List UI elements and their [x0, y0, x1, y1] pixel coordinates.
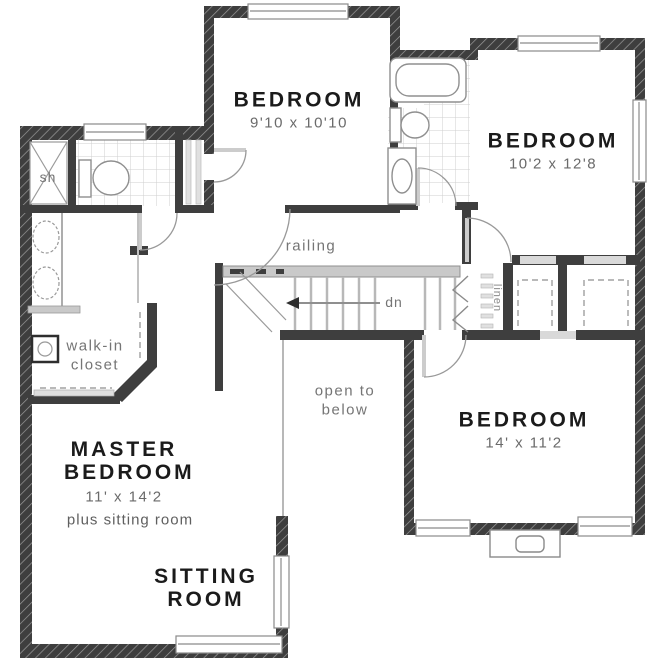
annotation-railing: railing: [286, 238, 337, 257]
bathtub: [390, 58, 466, 102]
double-vanity: [28, 213, 80, 313]
room-label-bedroom-top: BEDROOM: [234, 88, 365, 111]
room-label-bedroom-right: BEDROOM: [488, 129, 619, 152]
stairs: [223, 266, 460, 332]
annotation-open-to-below: open to below: [302, 382, 388, 420]
annotation-shower: sh: [40, 169, 57, 185]
room-label-sitting-room: SITTING ROOM: [146, 565, 266, 611]
annotation-linen: linen: [491, 284, 503, 312]
room-dims-bedroom-right: 10'2 x 12'8: [509, 156, 597, 173]
closet-openings: [520, 256, 626, 339]
annotation-down: dn: [385, 294, 403, 310]
room-dims-bedroom-top: 9'10 x 10'10: [250, 115, 348, 132]
room-label-bedroom-bottom-right: BEDROOM: [459, 408, 590, 431]
toilet-master-bath: [79, 160, 129, 197]
room-dims-bedroom-bottom-right: 14' x 11'2: [485, 435, 562, 452]
vanity-hall-bath: [388, 148, 416, 204]
stair-break-lines: [226, 272, 286, 332]
floor-plan: BEDROOM 9'10 x 10'10 BEDROOM 10'2 x 12'8…: [0, 0, 666, 664]
room-label-walk-in-closet: walk-in closet: [52, 337, 138, 375]
room-label-master-bedroom: MASTER BEDROOM: [64, 438, 184, 484]
window-seat: [490, 530, 560, 557]
room-note-master-bedroom: plus sitting room: [67, 512, 193, 529]
room-dims-master-bedroom: 11' x 14'2: [85, 489, 162, 506]
